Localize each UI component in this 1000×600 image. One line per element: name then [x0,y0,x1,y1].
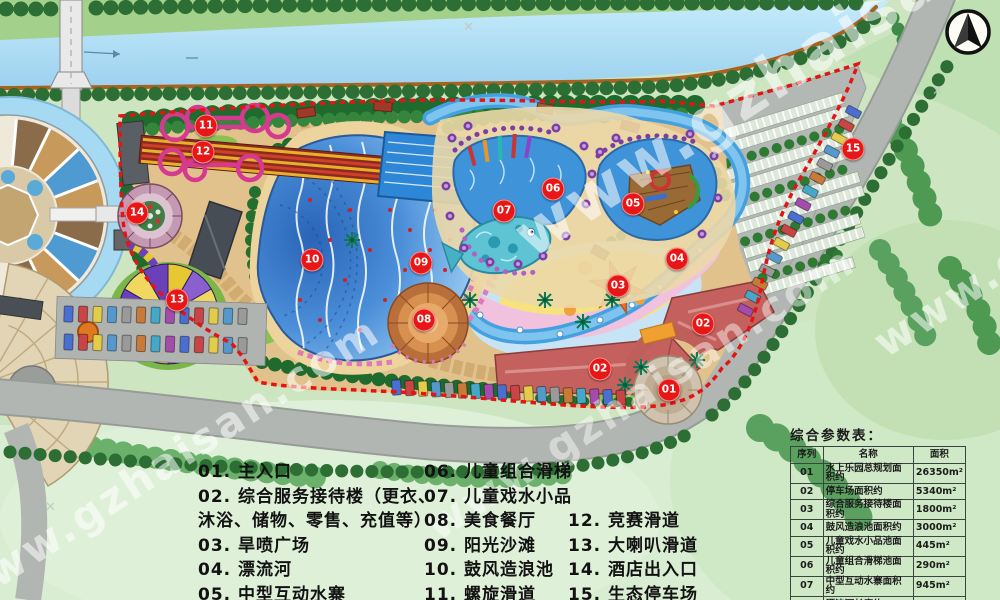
table-cell: 鼓风造浪池面积约 [823,520,913,537]
table-row: 02停车场面积约5340m² [791,483,966,500]
table-cell: 06 [791,556,824,576]
table-cell: 儿童戏水小品池面积约 [823,536,913,556]
parked-car [537,386,547,402]
table-cell: 02 [791,483,824,500]
parked-car [497,385,507,401]
table-cell: 儿童组合滑梯池面积约 [823,556,913,576]
table-cell: 300m [913,596,965,600]
parked-car [165,336,175,352]
table-cell: 08 [791,596,824,600]
table-cell: 26350m² [913,463,965,483]
parked-car [510,385,520,401]
round-plaza [118,184,182,248]
table-row: 03综合服务接待楼面积约1800m² [791,500,966,520]
table-cell: 水上乐园总规划面积约 [823,463,913,483]
table-cell: 445m² [913,536,965,556]
parked-car [238,308,248,324]
parked-car [209,308,219,324]
parked-car [563,388,573,404]
parked-car [136,335,146,351]
north-compass-icon [942,6,994,58]
parked-car [194,337,204,353]
parked-car [78,334,88,350]
parked-car [523,386,533,402]
parked-car [93,334,103,350]
parked-car [603,389,613,405]
table-cell: 945m² [913,576,965,596]
table-row: 06儿童组合滑梯池面积约290m² [791,556,966,576]
parameter-table-title: 综合参数表： [790,424,970,444]
parked-car [151,336,161,352]
parameter-table: 综合参数表： 序列名称面积01水上乐园总规划面积约26350m²02停车场面积约… [790,424,970,600]
table-cell: 综合服务接待楼面积约 [823,500,913,520]
table-header: 序列 [791,447,824,464]
table-row: 05儿童戏水小品池面积约445m² [791,536,966,556]
table-cell: 05 [791,536,824,556]
table-cell: 5340m² [913,483,965,500]
table-cell: 1800m² [913,500,965,520]
parked-car [64,334,74,350]
parked-car [136,307,146,323]
parked-car [122,307,132,323]
parked-car [576,388,586,404]
table-cell: 290m² [913,556,965,576]
table-cell: 3000m² [913,520,965,537]
table-row: 07中型互动水寨面积约945m² [791,576,966,596]
table-header: 面积 [913,447,965,464]
parked-car [616,390,626,406]
parked-car [122,335,132,351]
parked-car [151,307,161,323]
parked-car [550,387,560,403]
parked-car [165,307,175,323]
table-row: 01水上乐园总规划面积约26350m² [791,463,966,483]
parked-car [589,389,599,405]
parked-car [194,308,204,324]
table-cell: 03 [791,500,824,520]
table-cell: 中型互动水寨面积约 [823,576,913,596]
parked-car [180,336,190,352]
table-cell: 01 [791,463,824,483]
parked-car [78,306,88,322]
table-cell: 停车场面积约 [823,483,913,500]
parked-car [64,306,74,322]
table-header: 名称 [823,447,913,464]
water-park-master-plan: www.gzhaisan.com www.gzhaisan.com www.gz… [0,0,1000,600]
parked-car [93,306,103,322]
parked-car [223,308,233,324]
table-cell: 漂流河长度约 [823,596,913,600]
parked-car [107,306,117,322]
parked-car [209,337,219,353]
table-cell: 04 [791,520,824,537]
table-row: 04鼓风造浪池面积约3000m² [791,520,966,537]
restaurant [388,283,468,363]
table-cell: 07 [791,576,824,596]
table-row: 08漂流河长度约300m [791,596,966,600]
parked-car [107,335,117,351]
